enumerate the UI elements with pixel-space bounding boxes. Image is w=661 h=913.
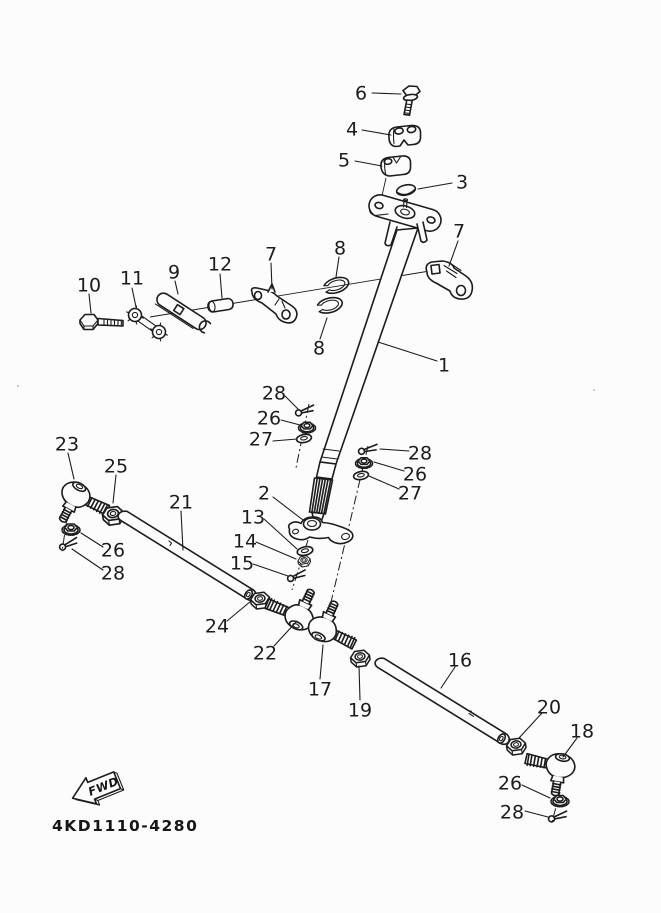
exploded-diagram: 6 4 5 3 7 7 8 8 12 9 11 10 1 28 26 27 28…	[0, 0, 661, 913]
parts-diagram-page: 6 4 5 3 7 7 8 8 12 9 11 10 1 28 26 27 28…	[0, 0, 661, 913]
part-upper-holder	[389, 125, 421, 146]
part-washer-mid-right	[353, 470, 369, 480]
callout-2: 2	[258, 483, 270, 505]
callout-4: 4	[346, 119, 358, 141]
part-connecting-link	[127, 306, 168, 341]
part-washer-mid-left	[296, 433, 312, 443]
part-tie-rod-end-17	[304, 596, 367, 655]
callout-14: 14	[233, 531, 257, 553]
callout-11: 11	[120, 268, 144, 290]
callout-23: 23	[55, 434, 79, 456]
part-washer-13	[296, 545, 313, 556]
callout-26-lower-left: 26	[101, 540, 125, 562]
diagram-code: 4KD1110-4280	[52, 817, 198, 835]
callout-18: 18	[570, 721, 594, 743]
part-tie-rod-end-18	[520, 748, 576, 798]
part-steering-arm	[289, 517, 353, 544]
part-bracket-left	[252, 284, 297, 323]
part-cotter-28-bottom-right	[548, 811, 569, 822]
callout-20: 20	[537, 697, 561, 719]
callout-24: 24	[205, 616, 229, 638]
callout-27-mid-left: 27	[249, 429, 273, 451]
callout-13: 13	[241, 507, 265, 529]
fwd-arrow: FWD	[67, 766, 125, 813]
part-seal-ring-lower	[317, 295, 344, 315]
part-cotter-mid-left	[295, 405, 316, 416]
part-lower-holder	[381, 156, 411, 176]
callout-5: 5	[338, 150, 350, 172]
part-collar	[208, 299, 233, 313]
callout-7-right: 7	[453, 221, 465, 243]
callout-28-mid-right: 28	[408, 443, 432, 465]
callout-9: 9	[168, 262, 180, 284]
part-cotter-28-lower-left	[58, 538, 79, 551]
callout-8-upper: 8	[334, 238, 346, 260]
callout-26-mid-left: 26	[257, 408, 281, 430]
callout-21: 21	[169, 492, 193, 514]
callout-27-mid-right: 27	[398, 483, 422, 505]
part-nut-26-bottom-right	[551, 796, 569, 807]
callout-6: 6	[355, 83, 367, 105]
part-bolt-10	[80, 315, 123, 330]
part-cotter-mid-right	[358, 444, 378, 455]
part-nut-19	[350, 650, 371, 668]
scan-speck	[17, 385, 19, 387]
callout-8-lower: 8	[313, 338, 325, 360]
callout-22: 22	[253, 643, 277, 665]
callout-26-bottom-right: 26	[498, 773, 522, 795]
callout-19: 19	[348, 700, 372, 722]
callout-28-mid-left: 28	[262, 383, 286, 405]
part-tie-rod-right	[375, 658, 509, 744]
part-nut-14	[297, 555, 311, 567]
part-tie-rod-end-23	[49, 477, 113, 538]
callout-12: 12	[208, 254, 232, 276]
callout-10: 10	[77, 275, 101, 297]
callout-28-lower-left: 28	[101, 563, 125, 585]
part-cap	[396, 183, 417, 197]
callout-7-left: 7	[265, 244, 277, 266]
scan-speck	[593, 389, 595, 391]
axis-line-horizontal	[150, 268, 448, 317]
part-bracket-right	[426, 261, 472, 299]
callout-15: 15	[230, 553, 254, 575]
part-nut-mid-right	[355, 458, 372, 469]
callout-16: 16	[448, 650, 472, 672]
callout-3: 3	[456, 172, 468, 194]
part-nut-26-lower-left	[62, 524, 80, 535]
callout-28-bottom-right: 28	[500, 802, 524, 824]
callout-1: 1	[438, 355, 450, 377]
callout-25: 25	[104, 456, 128, 478]
callout-17: 17	[308, 679, 332, 701]
part-bolt-6	[403, 86, 420, 115]
part-nut-mid-left	[298, 422, 315, 433]
